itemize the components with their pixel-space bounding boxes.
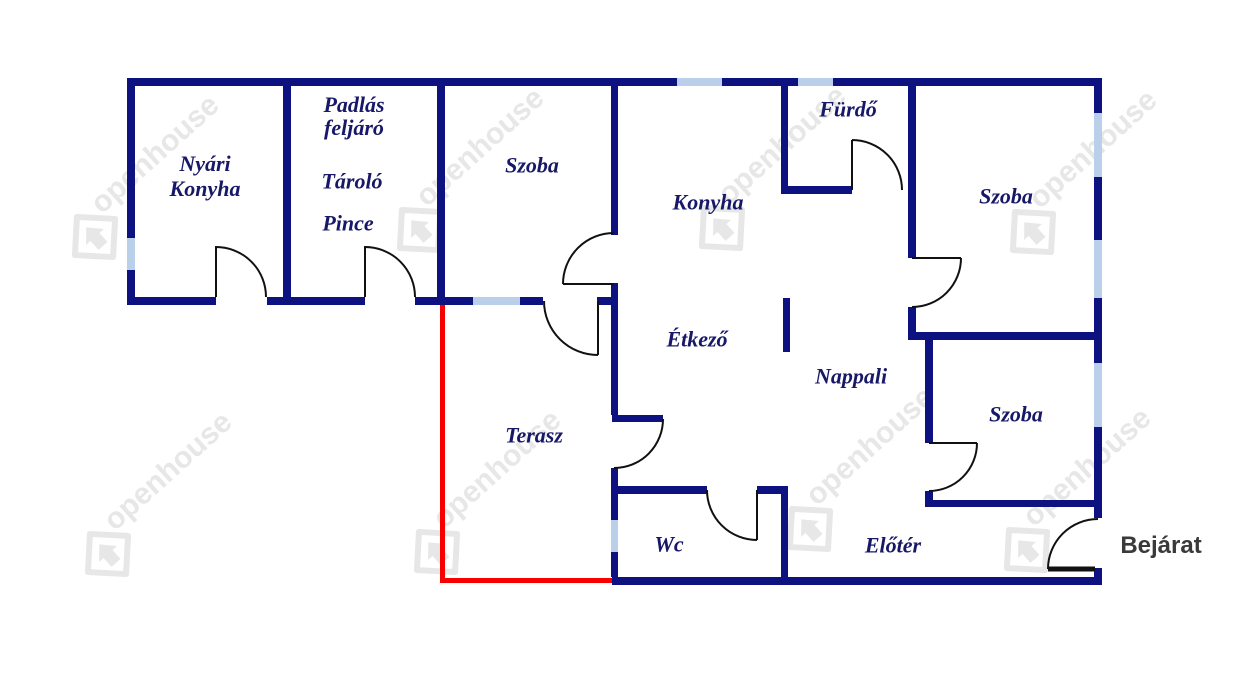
room-label-terasz: Terasz bbox=[505, 423, 563, 448]
room-label-furdo: Fürdő bbox=[819, 97, 876, 122]
floor-plan: openhouse openhouse openhouse openhouse bbox=[0, 0, 1237, 686]
room-label-tarolo: Tároló bbox=[321, 169, 382, 194]
room-label-szoba-top: Szoba bbox=[505, 153, 559, 178]
room-label-line: feljáró bbox=[323, 116, 384, 139]
room-labels: Nyári Konyha Padlás feljáró Tároló Pince… bbox=[0, 0, 1237, 686]
room-label-szoba-right-bottom: Szoba bbox=[989, 402, 1043, 427]
room-label-eloter: Előtér bbox=[865, 533, 921, 558]
room-label-line: Konyha bbox=[170, 176, 241, 201]
room-label-nappali: Nappali bbox=[815, 364, 887, 389]
room-label-pince: Pince bbox=[322, 211, 373, 236]
room-label-etkezo: Étkező bbox=[666, 327, 727, 352]
room-label-wc: Wc bbox=[654, 532, 683, 557]
entrance-label: Bejárat bbox=[1120, 532, 1201, 560]
room-label-nyari-konyha: Nyári Konyha bbox=[170, 151, 241, 201]
room-label-line: Nyári bbox=[170, 151, 241, 176]
room-label-konyha: Konyha bbox=[673, 190, 744, 215]
room-label-szoba-right-top: Szoba bbox=[979, 184, 1033, 209]
room-label-line: Padlás bbox=[323, 93, 384, 116]
room-label-padlas-feljaro: Padlás feljáró bbox=[323, 93, 384, 139]
